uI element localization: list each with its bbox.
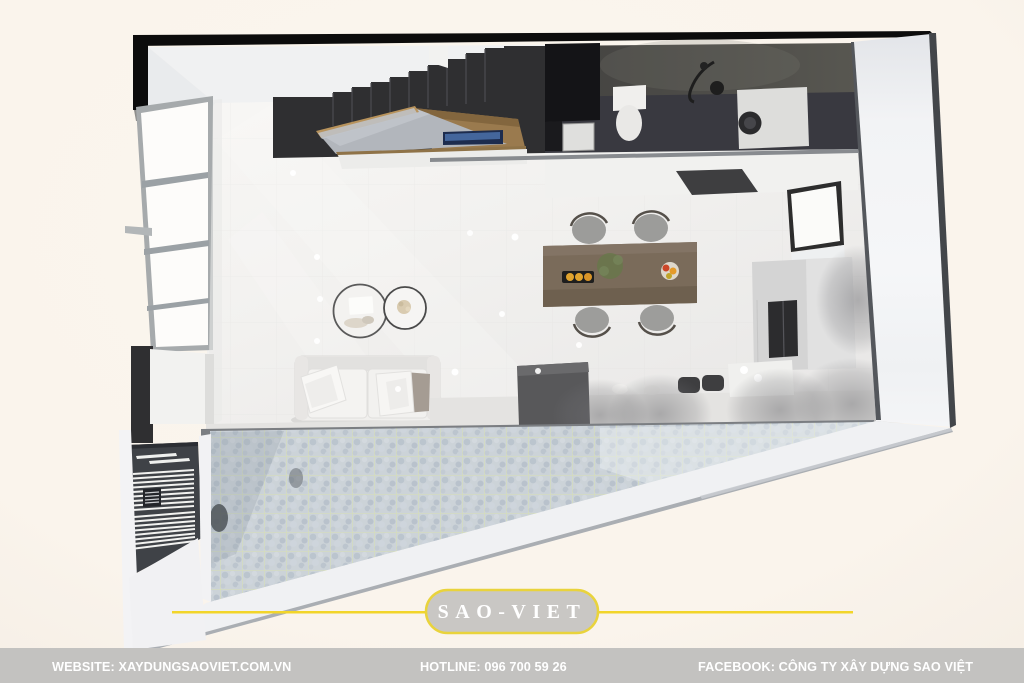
- svg-text:HOTLINE: 096 700 59 26: HOTLINE: 096 700 59 26: [420, 660, 567, 674]
- svg-text:WEBSITE: XAYDUNGSAOVIET.COM.VN: WEBSITE: XAYDUNGSAOVIET.COM.VN: [52, 660, 291, 674]
- svg-text:FACEBOOK: CÔNG TY XÂY DỰNG SAO: FACEBOOK: CÔNG TY XÂY DỰNG SAO VIỆT: [698, 659, 973, 674]
- svg-text:SAO-VIET: SAO-VIET: [438, 601, 587, 623]
